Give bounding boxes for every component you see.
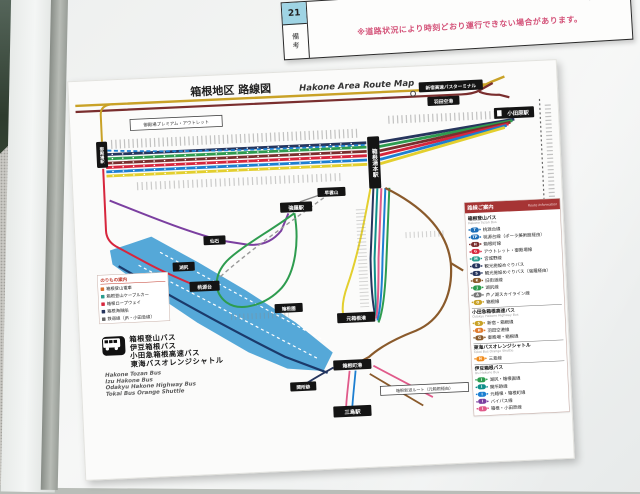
- labels-shindo-area: [406, 233, 444, 235]
- route-label: 三島線: [489, 355, 502, 362]
- timetable-left-column: 21 備考: [282, 2, 310, 59]
- route-badge: N: [476, 356, 485, 361]
- bus-operators-block: 箱根登山バス 伊豆箱根バス 小田急箱根高速バス 東海バスオレンジシャトル Hak…: [102, 329, 289, 397]
- route-label: 湖尻線: [485, 284, 498, 291]
- route-legend-panel: 路線ご案内 Route Information 箱根登山バス Hakone To…: [464, 198, 571, 452]
- timetable-code: 11602-02: [588, 0, 622, 2]
- route-badge: I: [478, 392, 487, 397]
- route-badge: T: [470, 227, 479, 232]
- route-label: 箱根・小田原線: [491, 404, 522, 412]
- route-badge: M: [472, 256, 481, 261]
- mishima-pink-line: [345, 371, 352, 406]
- bus-icon: [102, 336, 126, 356]
- vehicle-legend: のりもの案内 箱根登山電車 箱根登山ケーブルカー 箱根ロープウェイ 箱根海賊船: [97, 272, 171, 329]
- route-badge: I: [477, 377, 486, 382]
- timetable-remarks-label: 備考: [283, 24, 309, 59]
- route-badge: I: [478, 399, 487, 404]
- labels-right-top: [388, 115, 500, 120]
- photo-scene: 21 備考 11602-02 ※道路状況により時刻どおり運行できない場合がありま…: [0, 0, 640, 480]
- route-label: 桃源台線: [483, 225, 501, 232]
- gotemba-box: 御殿場駅: [96, 142, 108, 168]
- vehicle-legend-label: 箱根登山電車: [106, 285, 132, 292]
- route-badge: G: [471, 249, 480, 254]
- route-badge: J: [473, 285, 482, 290]
- legend-section-izuhakone: 伊豆箱根バス Izu Hakone Bus I湖尻・箱根園線 I関所跡線 I元箱…: [474, 361, 566, 413]
- route-label: 箱根線: [486, 298, 499, 305]
- cablecar-line: [300, 195, 320, 202]
- ropeway-icon: [101, 302, 105, 306]
- vehicle-legend-label: 箱根ロープウェイ: [107, 299, 141, 307]
- route-badge: H: [471, 242, 480, 247]
- labels-below-bundle: [137, 177, 341, 186]
- railway-icon: [102, 317, 106, 321]
- route-label: 湖尻・箱根園線: [489, 375, 520, 383]
- odawara-icon: [497, 110, 502, 116]
- route-map-poster: 箱根地区 路線図 Hakone Area Route Map: [67, 59, 575, 481]
- operators-jp: 箱根登山バス 伊豆箱根バス 小田急箱根高速バス 東海バスオレンジシャトル: [129, 332, 223, 369]
- mishima-blue-line: [351, 371, 358, 408]
- route-label: 宮城野線: [484, 254, 502, 261]
- route-badge: I: [477, 384, 486, 389]
- legend-section-tozan: 箱根登山バス Hakone Tozan Bus T桃源台線 TP桃源台線（ポーラ…: [468, 211, 562, 306]
- route-legend-title-en: Route Information: [528, 202, 558, 207]
- route-badge: S: [472, 271, 481, 276]
- legend-section-tokai: 東海バスオレンジシャトル Tokai Bus Orange Shuttle N三…: [473, 340, 564, 363]
- route-badge: S: [474, 321, 483, 326]
- route-badge: O: [474, 300, 483, 305]
- hakonemachi-label: 箱根町港: [341, 362, 362, 370]
- togendai-label: 桃源台: [197, 283, 212, 291]
- route-badge: H: [475, 328, 484, 333]
- route-label: 新宿・箱根線: [487, 318, 514, 326]
- timetable-notice-text: ※道路状況により時刻どおり運行できない場合があります。: [308, 11, 631, 41]
- junction-circle: [411, 91, 416, 96]
- vehicle-legend-label: 鉄道線（JR・小田急線）: [107, 314, 154, 322]
- timetable-row-number: 21: [282, 2, 307, 25]
- route-badge: TP: [471, 234, 480, 239]
- route-label: 関所跡線: [490, 383, 508, 390]
- route-badge: I: [478, 406, 487, 411]
- ship-icon: [102, 310, 106, 314]
- motohakone-label: 元箱根港: [346, 315, 366, 323]
- route-legend-title-jp: 路線ご案内: [467, 203, 494, 212]
- route-badge: A: [473, 292, 482, 297]
- labels-vertical-bundle: [360, 209, 364, 307]
- poster-title-jp: 箱根地区 路線図: [190, 81, 271, 99]
- route-label: 御殿場・箱根線: [488, 333, 519, 341]
- route-label: 旧街道線: [485, 276, 503, 283]
- vehicle-legend-row: 鉄道線（JR・小田急線）: [102, 313, 167, 322]
- labels-above-bundle: [111, 133, 359, 144]
- tozan-train-icon: [101, 287, 105, 291]
- legend-section-odakyu: 小田急箱根高速バス Odakyu Hakone Highway Bus S新宿・…: [472, 304, 563, 342]
- route-badge: S: [472, 263, 481, 268]
- cablecar-icon: [101, 295, 105, 299]
- vehicle-legend-label: 箱根海賊船: [107, 307, 129, 314]
- route-badge: G: [475, 335, 484, 340]
- vehicle-legend-label: 箱根登山ケーブルカー: [106, 291, 149, 299]
- yumoto-box: 箱根湯本駅: [367, 136, 381, 188]
- labels-lake-area: [231, 314, 289, 317]
- route-label: 箱根町線: [483, 240, 501, 247]
- route-badge: K: [473, 278, 482, 283]
